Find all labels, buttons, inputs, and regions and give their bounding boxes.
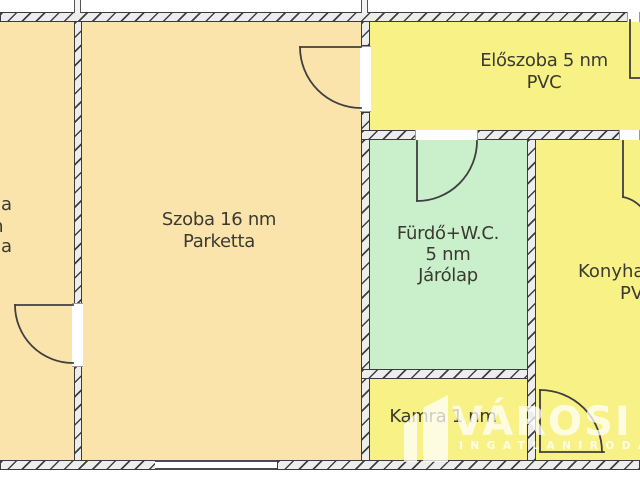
wall-eloszoba-bottom-right <box>477 130 620 140</box>
left-room-fragment-2: m <box>0 216 4 237</box>
wall-bottom-left <box>0 460 157 470</box>
left-room-fragment-3: a <box>1 236 12 257</box>
wall-left-upper <box>74 21 82 304</box>
furdo-name: Fürdő+W.C. <box>368 223 528 244</box>
wall-stub-top-mid <box>361 0 368 13</box>
wall-furdo-bottom <box>361 369 536 379</box>
eloszoba-floor: PVC <box>444 72 640 94</box>
window-bottom <box>155 460 279 470</box>
logo-bar-right <box>423 395 448 462</box>
door-gap-entrance <box>627 12 640 22</box>
door-gap-furdo <box>415 130 478 140</box>
door-gap-konyha <box>619 130 640 140</box>
left-room-fragment-1: a <box>1 194 12 215</box>
watermark-brand: VÁROSI <box>452 399 640 445</box>
watermark-logo-icon <box>400 390 452 465</box>
door-gap-left-room <box>72 303 83 367</box>
label-szoba: Szoba 16 nm Parketta <box>119 209 319 253</box>
szoba-floor: Parketta <box>119 231 319 253</box>
floor-plan: Szoba 16 nm Parketta Előszoba 5 nm PVC F… <box>0 0 640 480</box>
wall-bottom-right <box>277 460 640 470</box>
label-eloszoba: Előszoba 5 nm PVC <box>444 50 640 94</box>
wall-top <box>0 12 628 22</box>
furdo-floor: Járólap <box>368 265 528 286</box>
wall-left-lower <box>74 366 82 462</box>
wall-eloszoba-bottom-left <box>361 130 416 140</box>
watermark-subtitle: INGATLANIRODA <box>459 440 640 452</box>
wall-mid-upper <box>361 21 370 46</box>
szoba-name: Szoba 16 nm <box>119 209 319 231</box>
logo-bar-left <box>404 412 417 462</box>
konyha-name: Konyha <box>578 261 640 282</box>
eloszoba-name: Előszoba 5 nm <box>444 50 640 72</box>
konyha-floor: PVC <box>620 283 640 304</box>
door-gap-szoba <box>360 46 371 112</box>
label-furdo: Fürdő+W.C. 5 nm Járólap <box>368 223 528 286</box>
furdo-area: 5 nm <box>368 244 528 265</box>
wall-stub-top-left <box>74 0 81 13</box>
